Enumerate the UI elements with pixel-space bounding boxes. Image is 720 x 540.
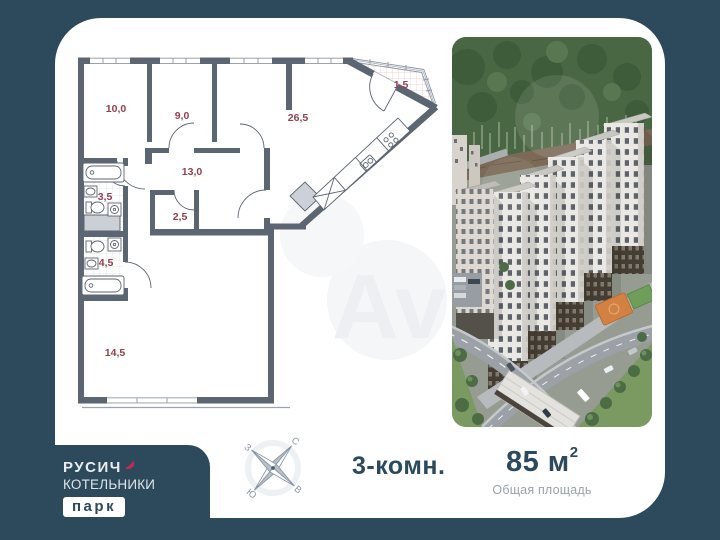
logo-brand: РУСИЧ [63, 460, 122, 475]
room-area-label: 1,5 [394, 79, 409, 91]
area-block: 85 м2 Общая площадь [481, 446, 603, 497]
room-area-label: 3,5 [98, 191, 113, 203]
compass-rose-icon: С В Ю З [236, 427, 310, 505]
page-background: Av [0, 0, 720, 540]
svg-text:Av: Av [332, 256, 446, 358]
room-area-label: 26,5 [288, 112, 309, 124]
room-area-label: 2,5 [173, 211, 188, 223]
logo-arrow-icon [124, 460, 135, 470]
rooms-count-label: 3-комн. [352, 452, 472, 481]
duct [84, 215, 120, 231]
floor-plan: Av [57, 28, 452, 430]
area-caption: Общая площадь [481, 483, 603, 497]
room-area-label: 13,0 [182, 166, 203, 178]
kitchen-counter [313, 118, 410, 210]
logo-project: КОТЕЛЬНИКИ [63, 478, 210, 492]
room-area-label: 14,5 [105, 347, 126, 359]
area-superscript: 2 [570, 444, 578, 461]
room-area-label: 10,0 [106, 103, 127, 115]
logo-block: РУСИЧ КОТЕЛЬНИКИ парк [55, 445, 210, 520]
area-value: 85 м [506, 446, 570, 478]
aerial-photo [452, 37, 652, 427]
watermark: Av [280, 193, 447, 360]
room-area-label: 9,0 [175, 110, 190, 122]
room-area-label: 4,5 [99, 257, 114, 269]
logo-park-badge: парк [63, 497, 125, 517]
